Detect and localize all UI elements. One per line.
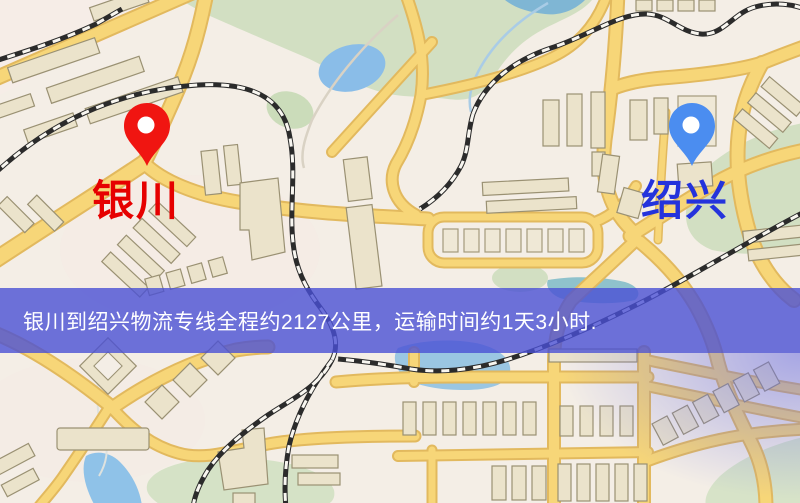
map-canvas[interactable] [0,0,800,503]
destination-pin[interactable] [667,100,717,168]
pin-hole [138,117,155,134]
origin-pin[interactable] [122,100,172,168]
pin-hole [683,117,700,134]
route-info-text: 银川到绍兴物流专线全程约2127公里，运输时间约1天3小时. [0,306,597,336]
destination-city-label: 绍兴 [641,180,729,222]
map-pin-icon [124,103,170,166]
map-pin-icon [669,103,715,166]
origin-city-label: 银川 [92,180,180,222]
route-info-banner: 银川到绍兴物流专线全程约2127公里，运输时间约1天3小时. [0,288,800,353]
map-view: 银川 绍兴 银川到绍兴物流专线全程约2127公里，运输时间约1天3小时. [0,0,800,503]
